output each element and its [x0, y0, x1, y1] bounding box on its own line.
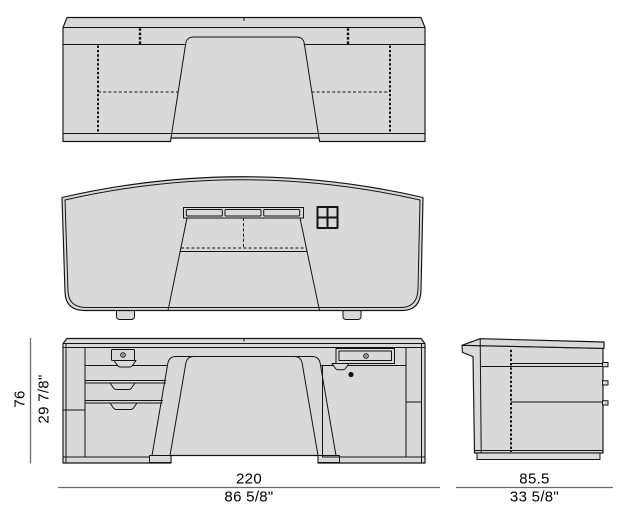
width-value-inch: 86 5/8" [224, 489, 273, 506]
height-value-cm: 76 [12, 390, 29, 407]
rear-slot-3 [264, 210, 300, 217]
side-body-outline [462, 345, 603, 453]
lock-pin-left [122, 354, 124, 356]
handle-notch-drawer-2 [110, 383, 135, 390]
side-plinth [477, 453, 600, 460]
side-handle-tab-1 [603, 363, 609, 367]
back-view-outline [62, 177, 423, 311]
dimension-depth: 85.5 33 5/8" [456, 471, 613, 506]
keyhole-icon [348, 372, 353, 377]
side-view [462, 339, 608, 460]
depth-value-inch: 33 5/8" [510, 489, 559, 506]
rear-slot-2 [225, 210, 261, 217]
top-view-outline [63, 18, 425, 142]
front-foot-left [150, 456, 172, 463]
side-handle-tab-2 [603, 381, 609, 385]
side-handle-tab-3 [603, 401, 609, 405]
dimension-width: 220 86 5/8" [58, 471, 440, 506]
depth-value-cm: 85.5 [519, 471, 549, 488]
technical-drawing-page: 76 29 7/8" 220 86 5/8" 85.5 33 5/8" [0, 0, 620, 517]
rear-slot-1 [186, 210, 222, 217]
height-value-inch: 29 7/8" [36, 374, 53, 423]
desk-dimension-drawing: 76 29 7/8" 220 86 5/8" 85.5 33 5/8" [0, 0, 620, 517]
top-view [63, 18, 425, 142]
handle-notch-apron [114, 361, 136, 368]
handle-notch-drawer-3 [110, 403, 137, 410]
back-view [62, 177, 423, 320]
dimension-height: 76 29 7/8" [12, 338, 53, 464]
front-view [63, 339, 425, 464]
width-value-cm: 220 [236, 471, 262, 488]
lock-pin-right [365, 355, 367, 357]
